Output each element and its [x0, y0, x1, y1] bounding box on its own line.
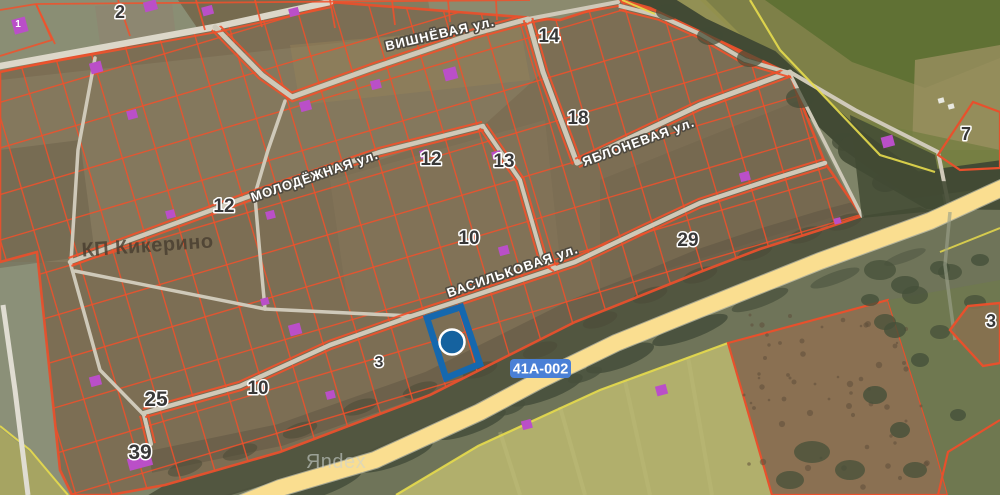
svg-text:13: 13 — [493, 151, 514, 172]
svg-text:39: 39 — [128, 441, 151, 464]
svg-text:3: 3 — [986, 311, 996, 331]
svg-text:25: 25 — [144, 388, 168, 411]
svg-text:2: 2 — [115, 2, 125, 22]
svg-text:18: 18 — [567, 108, 588, 129]
svg-text:12: 12 — [420, 149, 441, 170]
svg-text:7: 7 — [961, 124, 971, 144]
svg-text:3: 3 — [375, 354, 384, 371]
svg-text:10: 10 — [247, 378, 268, 399]
svg-text:10: 10 — [458, 228, 479, 249]
svg-text:41А-002: 41А-002 — [513, 362, 569, 378]
svg-text:29: 29 — [677, 230, 698, 251]
svg-text:14: 14 — [538, 26, 560, 47]
svg-text:12: 12 — [213, 196, 234, 217]
svg-text:1: 1 — [15, 19, 21, 30]
svg-text:Яndex: Яndex — [306, 451, 366, 473]
